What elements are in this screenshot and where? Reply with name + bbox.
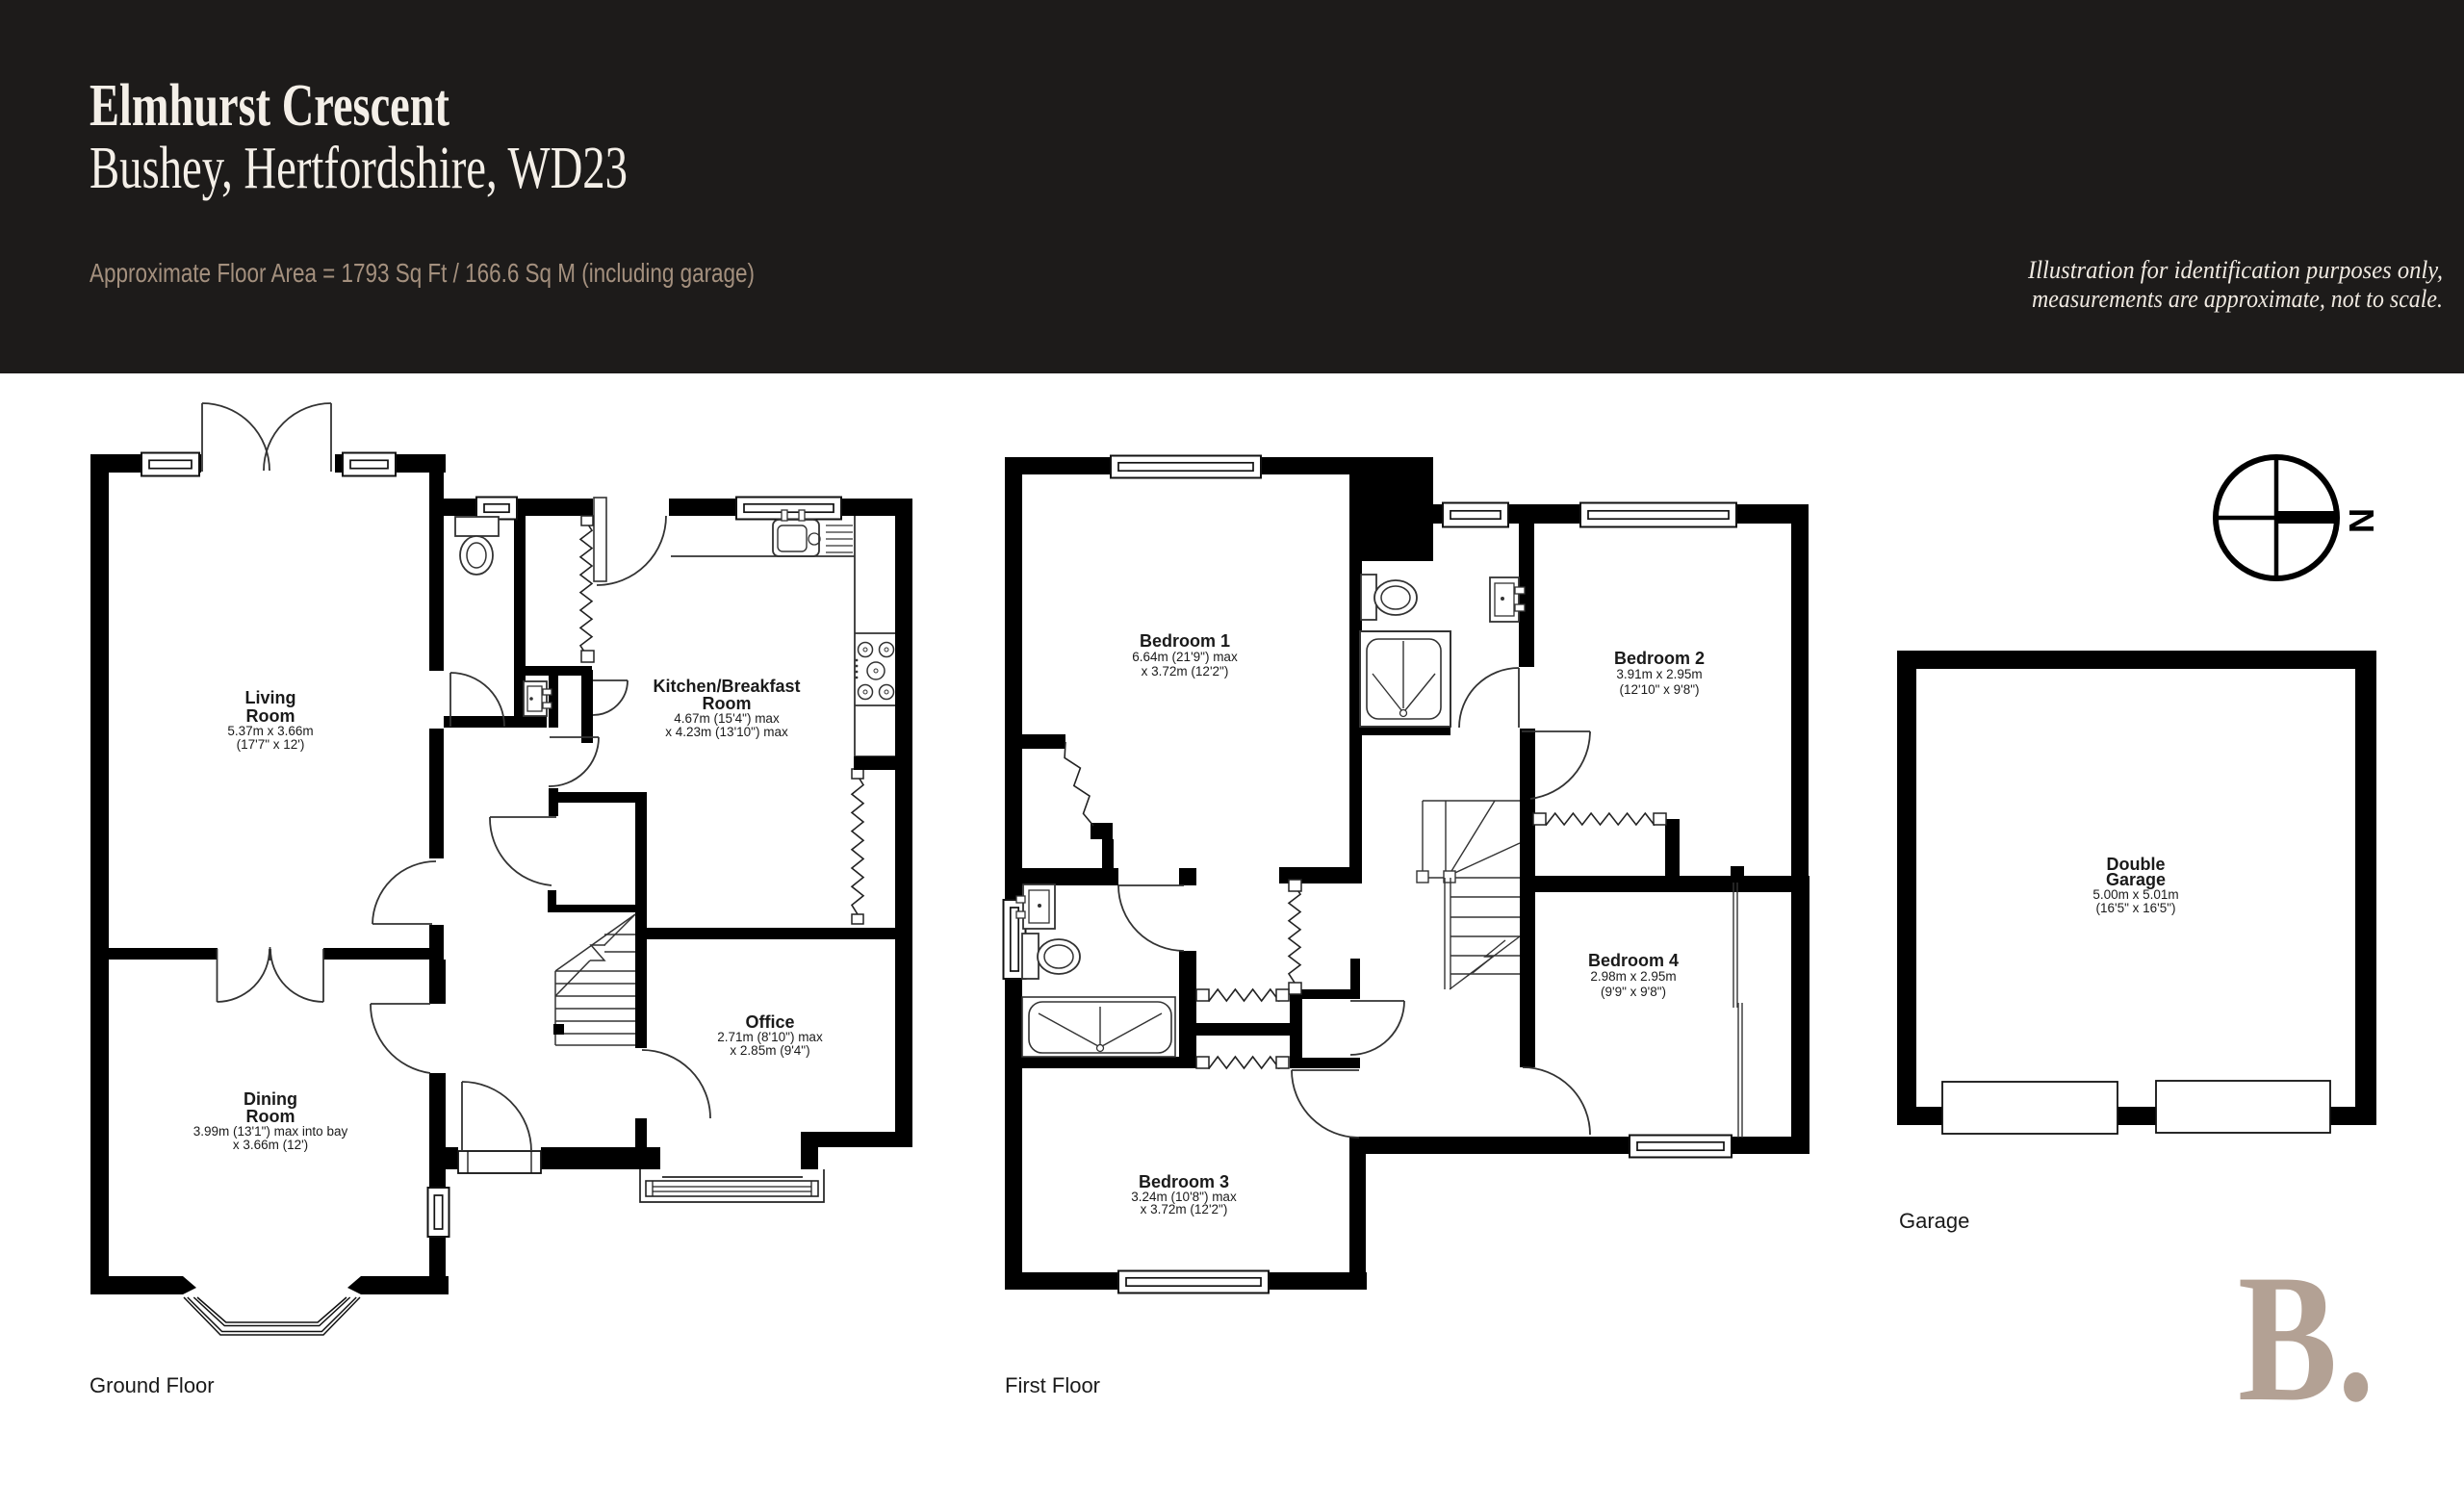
- svg-text:(17'7" x 12'): (17'7" x 12'): [237, 737, 305, 752]
- svg-text:6.64m (21'9") max: 6.64m (21'9") max: [1132, 650, 1238, 664]
- svg-text:x 3.72m (12'2"): x 3.72m (12'2"): [1141, 1202, 1228, 1216]
- svg-text:x 3.66m (12'): x 3.66m (12'): [233, 1138, 308, 1152]
- svg-text:Bedroom 4: Bedroom 4: [1588, 951, 1679, 970]
- svg-text:(12'10" x 9'8"): (12'10" x 9'8"): [1619, 682, 1699, 697]
- svg-text:B.: B.: [2238, 1238, 2374, 1440]
- svg-text:Bedroom 1: Bedroom 1: [1140, 631, 1230, 651]
- svg-text:Garage: Garage: [2106, 870, 2166, 889]
- svg-text:N: N: [2342, 508, 2381, 533]
- svg-text:(16'5" x 16'5"): (16'5" x 16'5"): [2095, 901, 2175, 915]
- svg-text:5.00m x 5.01m: 5.00m x 5.01m: [2092, 887, 2178, 902]
- svg-text:x 3.72m (12'2"): x 3.72m (12'2"): [1142, 664, 1229, 678]
- svg-text:3.99m (13'1") max into bay: 3.99m (13'1") max into bay: [193, 1124, 348, 1139]
- svg-text:Bedroom 3: Bedroom 3: [1139, 1172, 1229, 1191]
- svg-text:x 4.23m (13'10") max: x 4.23m (13'10") max: [665, 725, 788, 739]
- svg-text:Garage: Garage: [1899, 1209, 1969, 1233]
- svg-text:Living: Living: [245, 688, 296, 707]
- svg-text:Bedroom 2: Bedroom 2: [1614, 649, 1705, 668]
- svg-text:First Floor: First Floor: [1005, 1373, 1100, 1397]
- svg-text:Room: Room: [246, 706, 295, 726]
- svg-text:x 2.85m (9'4"): x 2.85m (9'4"): [730, 1043, 809, 1058]
- svg-text:Illustration for identificatio: Illustration for identification purposes…: [2027, 256, 2443, 284]
- svg-text:(9'9" x 9'8"): (9'9" x 9'8"): [1601, 985, 1666, 999]
- svg-text:Room: Room: [703, 694, 752, 713]
- svg-text:measurements are approximate,: measurements are approximate, not to sca…: [2032, 285, 2443, 313]
- svg-text:Room: Room: [246, 1107, 295, 1126]
- svg-text:Approximate Floor Area = 1793: Approximate Floor Area = 1793 Sq Ft / 16…: [90, 258, 755, 288]
- svg-text:5.37m x 3.66m: 5.37m x 3.66m: [227, 724, 313, 738]
- svg-text:3.91m x 2.95m: 3.91m x 2.95m: [1616, 667, 1702, 681]
- svg-text:4.67m (15'4") max: 4.67m (15'4") max: [674, 711, 780, 726]
- svg-text:Office: Office: [745, 1012, 794, 1032]
- svg-text:2.98m x 2.95m: 2.98m x 2.95m: [1590, 969, 1676, 984]
- svg-text:Kitchen/Breakfast: Kitchen/Breakfast: [653, 677, 800, 696]
- svg-text:Elmhurst Crescent: Elmhurst Crescent: [90, 73, 449, 139]
- svg-text:Bushey, Hertfordshire, WD23: Bushey, Hertfordshire, WD23: [90, 136, 628, 201]
- svg-text:2.71m (8'10") max: 2.71m (8'10") max: [717, 1030, 823, 1044]
- svg-text:Ground Floor: Ground Floor: [90, 1373, 215, 1397]
- svg-text:Dining: Dining: [244, 1089, 297, 1109]
